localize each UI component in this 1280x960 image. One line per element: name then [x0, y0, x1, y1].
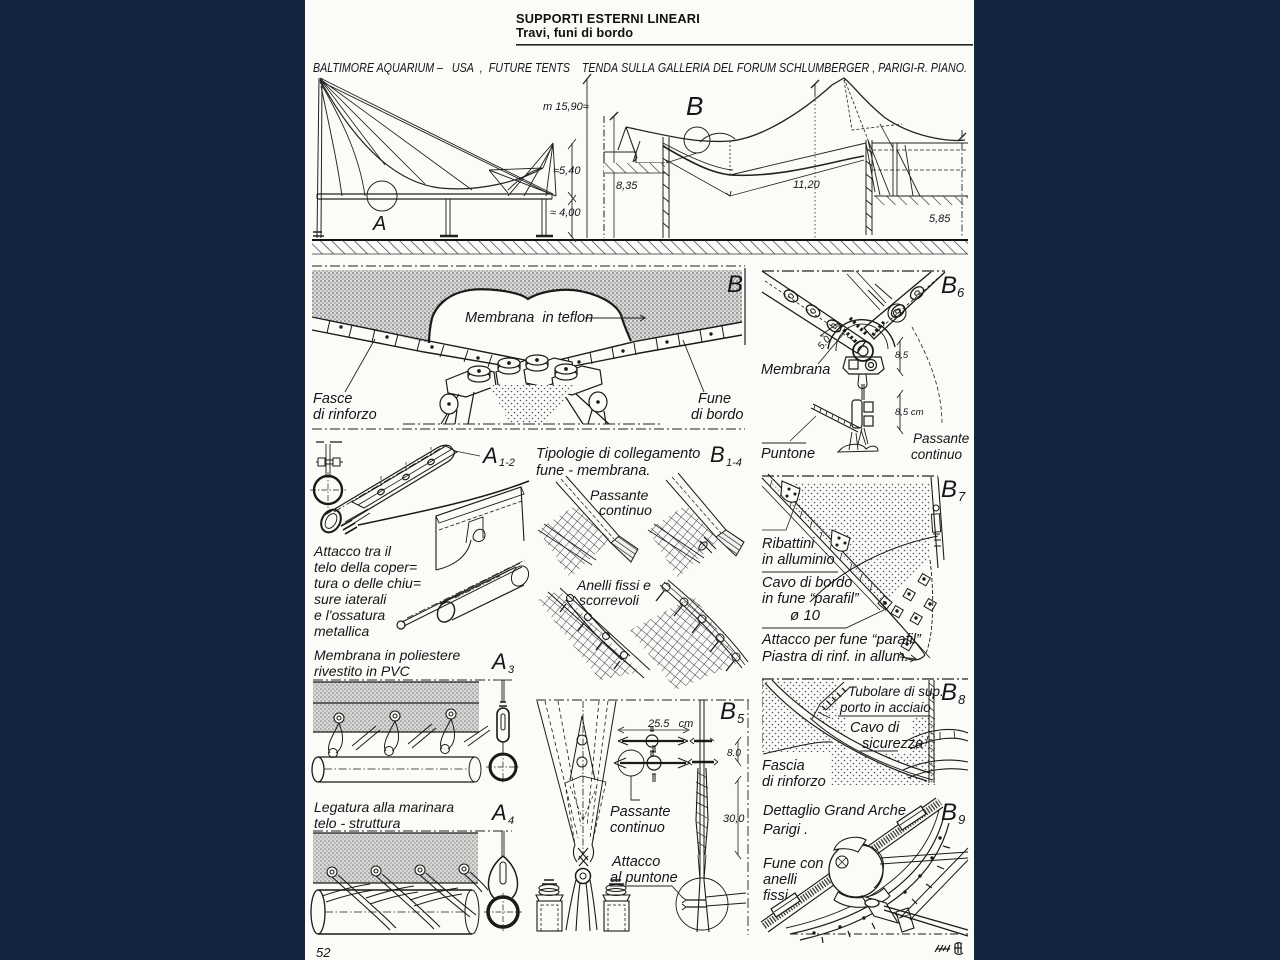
svg-text:al puntone: al puntone — [610, 870, 678, 886]
svg-text:anelli: anelli — [763, 872, 798, 888]
svg-text:Puntone: Puntone — [761, 446, 815, 462]
svg-text:8,5: 8,5 — [895, 350, 909, 361]
svg-text:1-2: 1-2 — [499, 457, 515, 469]
svg-text:Membrana: Membrana — [761, 362, 830, 378]
svg-text:Attacco per fune “parafil”: Attacco per fune “parafil” — [761, 632, 922, 648]
svg-text:Fune: Fune — [698, 391, 731, 407]
svg-text:8.0: 8.0 — [727, 748, 741, 759]
svg-text:Parigi .: Parigi . — [763, 822, 808, 838]
svg-text:Membrana in poliestere: Membrana in poliestere — [314, 647, 461, 663]
svg-text:A: A — [372, 213, 386, 235]
svg-text:7: 7 — [958, 489, 966, 504]
svg-text:30,0: 30,0 — [723, 813, 745, 825]
svg-text:BALTIMORE AQUARIUM – USA ,: BALTIMORE AQUARIUM – USA , FUTURE TENTS … — [313, 61, 967, 75]
svg-text:≈5,40: ≈5,40 — [553, 165, 581, 177]
svg-text:Anelli fissi e: Anelli fissi e — [576, 577, 651, 593]
svg-text:continuo: continuo — [599, 502, 652, 518]
svg-text:in fune “parafil”: in fune “parafil” — [762, 591, 860, 607]
svg-text:Membrana in teflon: Membrana in teflon — [465, 310, 593, 326]
svg-text:scorrevoli: scorrevoli — [579, 592, 640, 608]
svg-text:fune - membrana.: fune - membrana. — [536, 463, 650, 479]
svg-text:Tipologie di collegamento: Tipologie di collegamento — [536, 446, 700, 462]
svg-text:Travi, funi di bordo: Travi, funi di bordo — [516, 25, 633, 40]
svg-text:B: B — [941, 476, 957, 503]
svg-text:1-4: 1-4 — [726, 457, 742, 469]
svg-text:continuo: continuo — [911, 447, 963, 462]
svg-text:52: 52 — [316, 945, 331, 960]
svg-text:e l'ossatura: e l'ossatura — [314, 607, 385, 623]
svg-text:SUPPORTI ESTERNI LINEARI: SUPPORTI ESTERNI LINEARI — [516, 11, 700, 26]
svg-text:Passante: Passante — [913, 431, 969, 446]
svg-text:continuo: continuo — [610, 820, 665, 836]
svg-text:Legatura alla marinara: Legatura alla marinara — [314, 799, 454, 815]
svg-text:ø 10: ø 10 — [790, 607, 821, 624]
svg-text:A: A — [490, 800, 507, 825]
svg-text:B: B — [710, 442, 725, 467]
svg-text:5: 5 — [737, 711, 745, 726]
svg-text:m 15,90≈: m 15,90≈ — [543, 101, 589, 113]
svg-text:Attacco tra il: Attacco tra il — [313, 543, 392, 559]
svg-text:≈ 4,00: ≈ 4,00 — [550, 207, 581, 219]
svg-text:9: 9 — [958, 812, 965, 827]
svg-text:8: 8 — [958, 692, 966, 707]
svg-text:4: 4 — [508, 815, 514, 827]
svg-text:Fascia: Fascia — [762, 758, 805, 774]
svg-text:11,20: 11,20 — [793, 179, 821, 191]
svg-text:B: B — [941, 272, 957, 299]
svg-text:Fasce: Fasce — [313, 391, 353, 407]
svg-text:Cavo di: Cavo di — [850, 720, 900, 736]
svg-text:6: 6 — [957, 285, 965, 300]
svg-text:Piastra di rinf. in allum.: Piastra di rinf. in allum. — [762, 649, 909, 665]
svg-text:Tubolare di sup.: Tubolare di sup. — [848, 684, 944, 699]
svg-text:B: B — [941, 799, 957, 826]
svg-text:telo della coper=: telo della coper= — [314, 559, 417, 575]
svg-text:Ribattini: Ribattini — [762, 536, 815, 552]
svg-text:8,5 cm: 8,5 cm — [895, 407, 924, 418]
svg-text:rivestito in PVC: rivestito in PVC — [314, 663, 411, 679]
svg-text:A: A — [490, 649, 507, 674]
svg-text:porto in acciaio: porto in acciaio — [839, 700, 931, 715]
svg-text:metallica: metallica — [314, 623, 369, 639]
svg-text:A: A — [481, 443, 498, 468]
svg-text:Attacco: Attacco — [611, 854, 660, 870]
svg-text:3: 3 — [508, 664, 515, 676]
svg-text:25.5 cm: 25.5 cm — [647, 718, 693, 730]
svg-text:di rinforzo: di rinforzo — [762, 774, 826, 790]
svg-text:5,85: 5,85 — [929, 213, 951, 225]
svg-text:8,35: 8,35 — [616, 180, 638, 192]
svg-text:sicurezza: sicurezza — [862, 736, 923, 752]
svg-text:tura o delle chiu=: tura o delle chiu= — [314, 575, 421, 591]
svg-text:Dettaglio Grand Arche: Dettaglio Grand Arche — [763, 803, 906, 819]
svg-text:in alluminio: in alluminio — [762, 552, 835, 568]
svg-text:Passante: Passante — [590, 487, 649, 503]
svg-text:B: B — [727, 271, 743, 298]
svg-text:Cavo di bordo: Cavo di bordo — [762, 575, 852, 591]
svg-text:telo - struttura: telo - struttura — [314, 815, 401, 831]
svg-text:B: B — [686, 91, 703, 121]
svg-text:di bordo: di bordo — [691, 407, 743, 423]
svg-text:di rinforzo: di rinforzo — [313, 407, 377, 423]
svg-text:B: B — [720, 698, 736, 725]
svg-text:Passante: Passante — [610, 804, 670, 820]
svg-text:Fune con: Fune con — [763, 856, 823, 872]
svg-text:sure iaterali: sure iaterali — [314, 591, 387, 607]
